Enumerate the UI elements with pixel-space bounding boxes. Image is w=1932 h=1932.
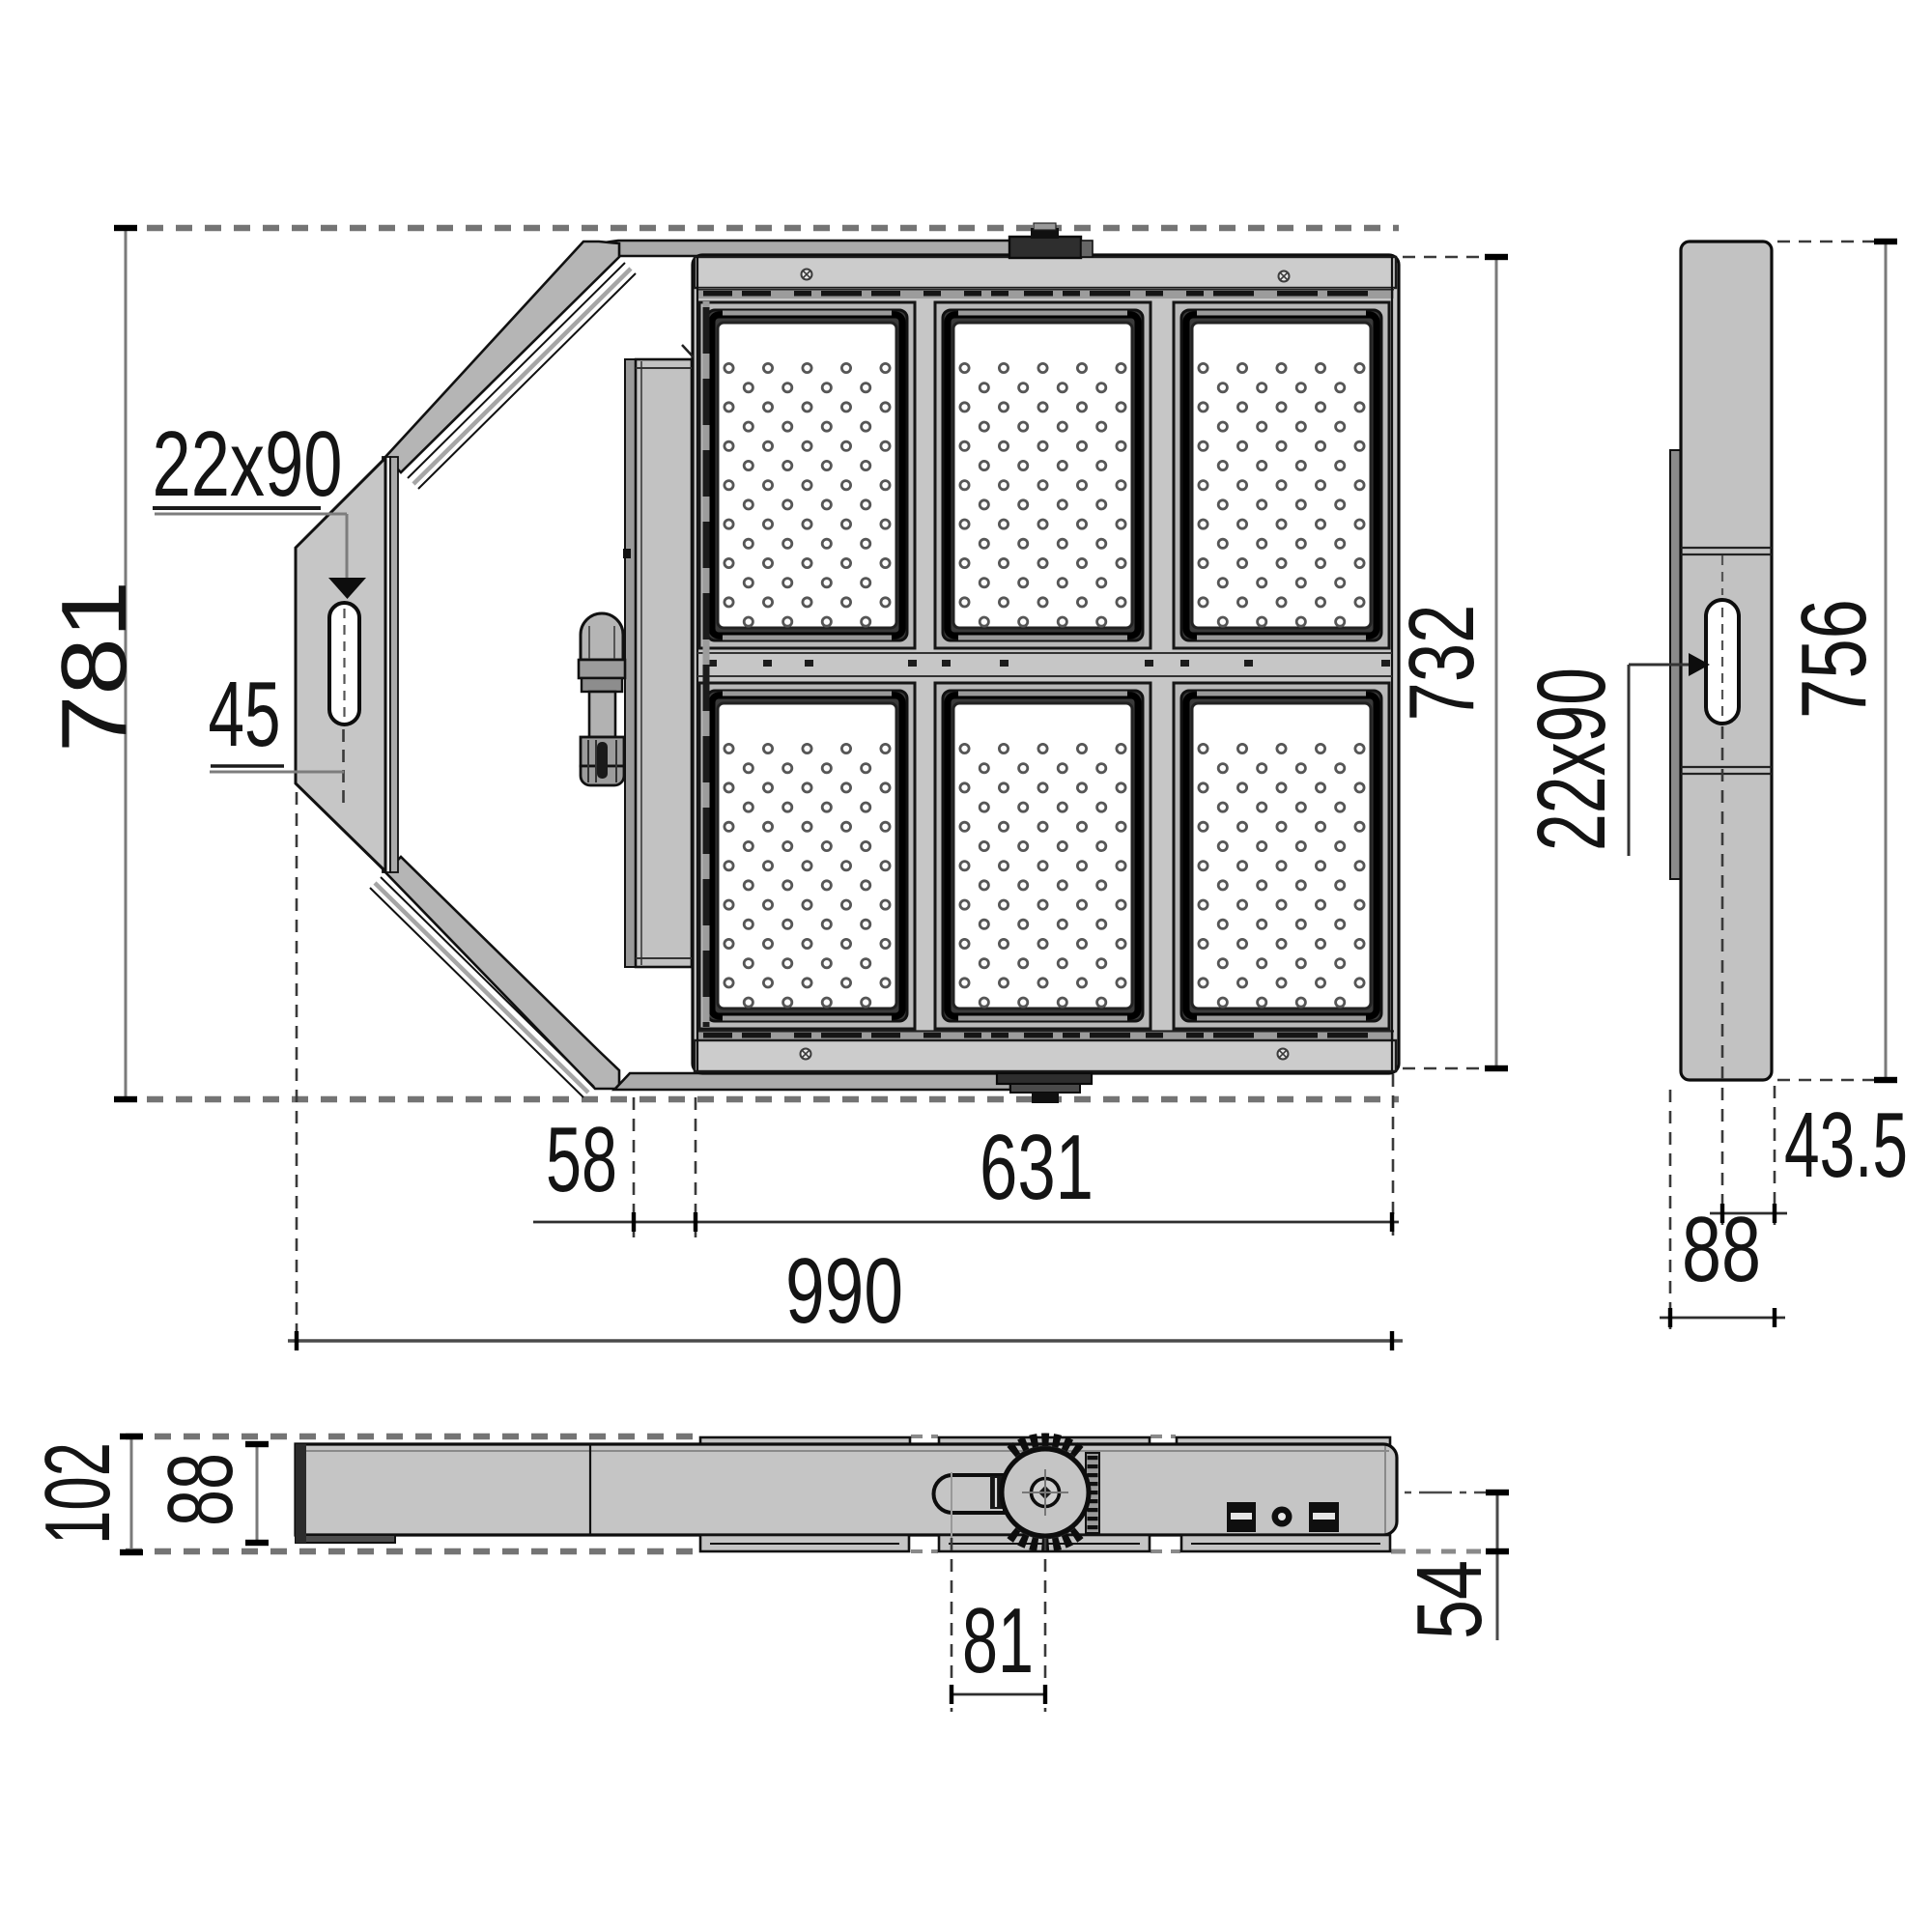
svg-text:88: 88	[149, 1453, 252, 1526]
svg-text:990: 990	[785, 1239, 903, 1343]
svg-text:756: 756	[1782, 599, 1886, 719]
svg-text:102: 102	[26, 1442, 129, 1545]
svg-text:81: 81	[962, 1589, 1034, 1692]
svg-text:58: 58	[546, 1108, 617, 1211]
svg-text:43.5: 43.5	[1784, 1094, 1908, 1197]
svg-text:88: 88	[1682, 1198, 1761, 1301]
svg-text:22x90: 22x90	[1518, 668, 1626, 851]
svg-text:631: 631	[980, 1116, 1094, 1219]
svg-text:732: 732	[1390, 605, 1493, 722]
svg-text:22x90: 22x90	[153, 412, 343, 516]
svg-text:45: 45	[209, 663, 281, 766]
svg-text:781: 781	[43, 581, 146, 753]
svg-text:54: 54	[1398, 1560, 1501, 1639]
